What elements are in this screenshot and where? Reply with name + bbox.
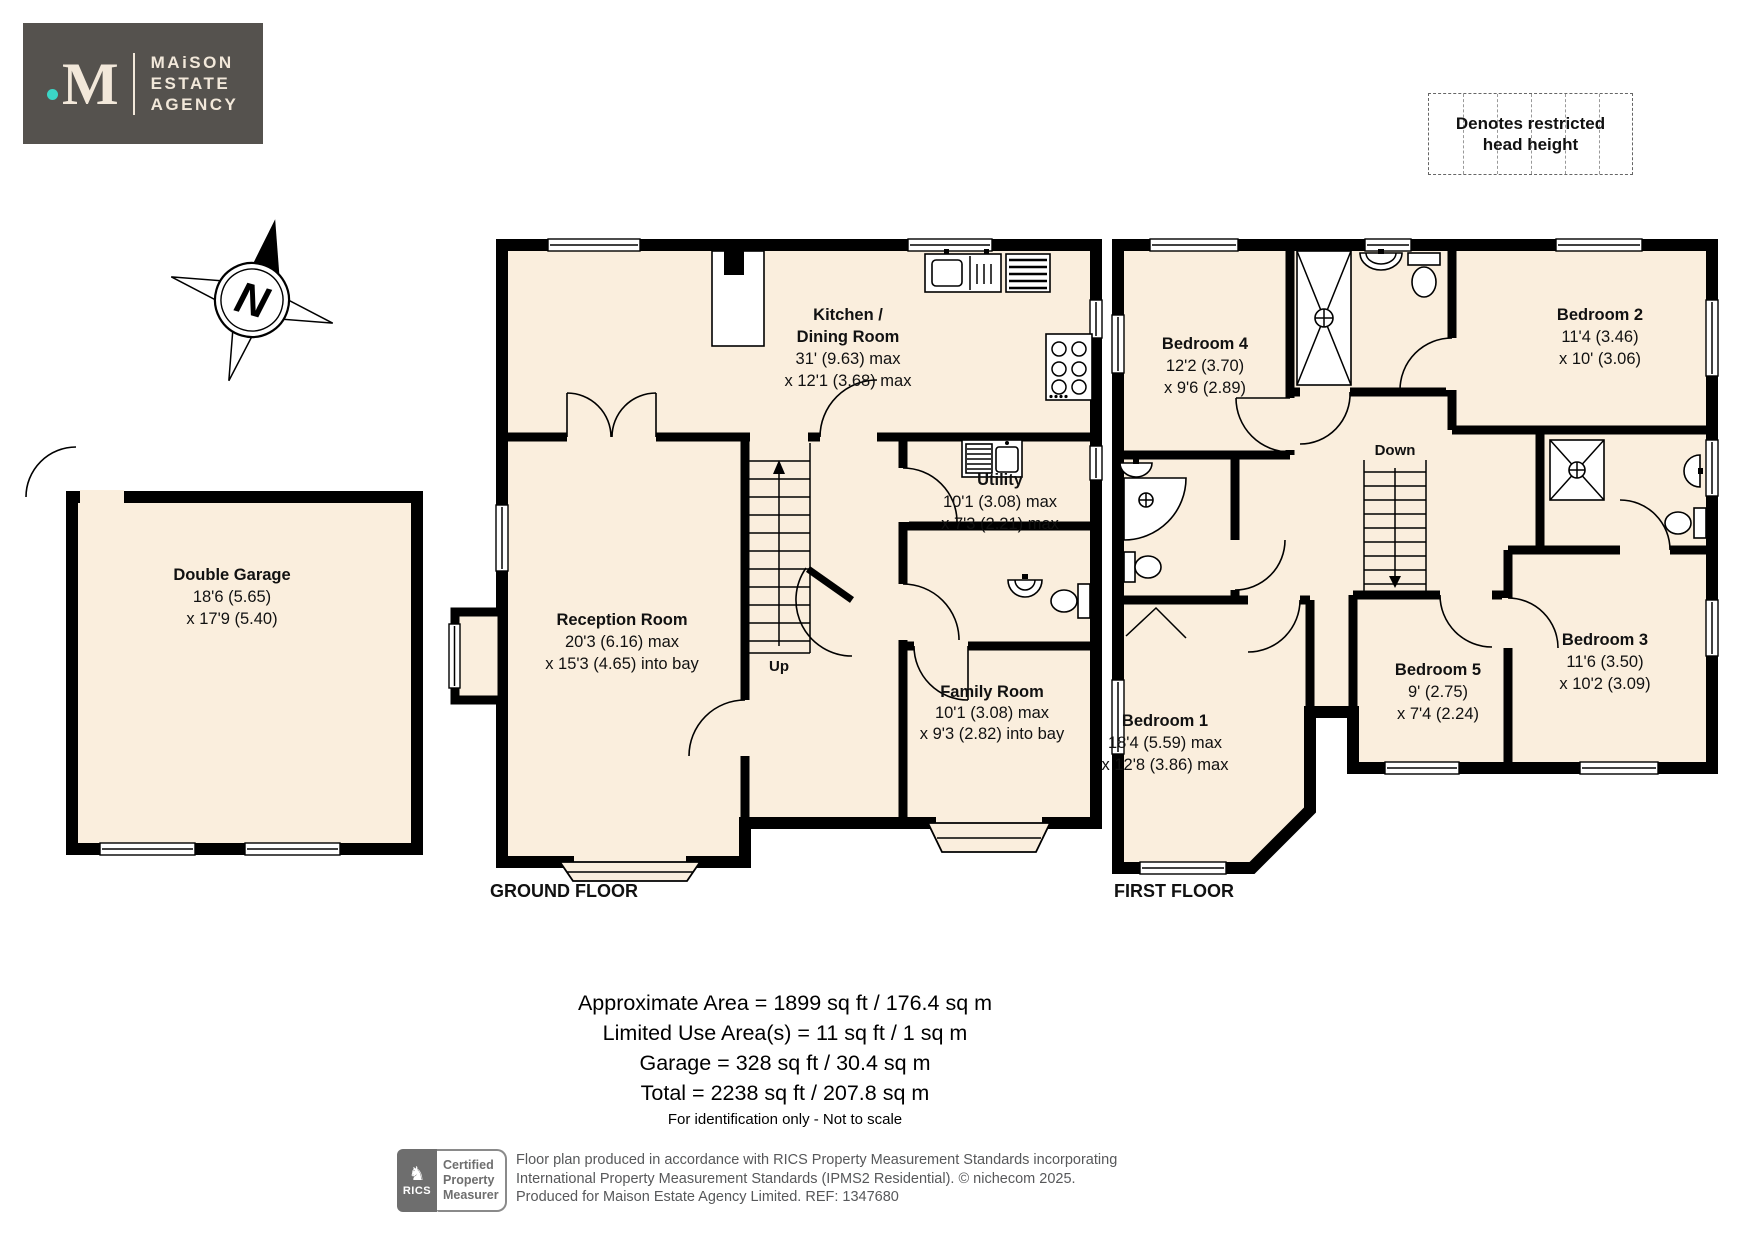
- bedroom3-label: Bedroom 3 11'6 (3.50) x 10'2 (3.09): [1559, 631, 1650, 693]
- room-label: Dining Room: [797, 328, 900, 346]
- compass-rose: N: [148, 196, 356, 404]
- summary-line: Garage = 328 sq ft / 30.4 sq m: [420, 1048, 1150, 1078]
- bathroom-shower-icon: [1297, 251, 1351, 385]
- room-dimension: 10'1 (3.08) max: [943, 493, 1058, 511]
- room-label: Bedroom 4: [1162, 335, 1249, 353]
- hob-icon: [1046, 334, 1092, 400]
- family-room-label: Family Room 10'1 (3.08) max x 9'3 (2.82)…: [920, 683, 1065, 743]
- garage-plan: Double Garage 18'6 (5.65) x 17'9 (5.40): [26, 447, 417, 855]
- kitchen-sink-icon: [925, 249, 1001, 292]
- room-dimension: x 7'4 (2.24): [1397, 705, 1479, 723]
- fine-print-line: International Property Measurement Stand…: [516, 1170, 1176, 1189]
- window: [1580, 762, 1658, 774]
- bedroom4-label: Bedroom 4 12'2 (3.70) x 9'6 (2.89): [1162, 335, 1249, 397]
- room-dimension: 9' (2.75): [1408, 683, 1468, 701]
- summary-line: Limited Use Area(s) = 11 sq ft / 1 sq m: [420, 1018, 1150, 1048]
- room-label: Family Room: [940, 683, 1044, 701]
- reception-label: Reception Room 20'3 (6.16) max x 15'3 (4…: [545, 611, 699, 673]
- window: [1706, 300, 1718, 376]
- window: [1150, 239, 1238, 251]
- bedroom2-label: Bedroom 2 11'4 (3.46) x 10' (3.06): [1557, 306, 1643, 368]
- summary-line: Approximate Area = 1899 sq ft / 176.4 sq…: [420, 988, 1150, 1018]
- room-dimension: 18'4 (5.59) max: [1108, 734, 1223, 752]
- first-floor-plan: Down: [1102, 239, 1718, 901]
- room-dimension: x 10' (3.06): [1559, 350, 1641, 368]
- stairs-down-label: Down: [1375, 442, 1416, 459]
- certified-line: Property: [443, 1173, 505, 1188]
- room-label: Bedroom 2: [1557, 306, 1643, 324]
- room-dimension: 10'1 (3.08) max: [935, 704, 1050, 722]
- room-dimension: x 12'1 (3.68) max: [785, 372, 913, 390]
- window: [1090, 300, 1102, 338]
- room-label: Reception Room: [556, 611, 687, 629]
- garage-door: [100, 843, 195, 855]
- room-dimension: 20'3 (6.16) max: [565, 633, 680, 651]
- room-dimension: 11'6 (3.50): [1566, 653, 1643, 671]
- stair-head-opening: [750, 431, 808, 443]
- summary-line: Total = 2238 sq ft / 207.8 sq m: [420, 1078, 1150, 1108]
- room-dimension: x 10'2 (3.09): [1559, 675, 1650, 693]
- reception-bay-window: [560, 854, 700, 881]
- ground-floor-plan: Up: [449, 239, 1102, 901]
- room-dimension: x 7'3 (2.21) max: [941, 515, 1060, 533]
- rics-logo: ♞ RICS: [397, 1149, 437, 1212]
- reception-side-bay: [449, 612, 502, 700]
- area-summary: Approximate Area = 1899 sq ft / 176.4 sq…: [420, 988, 1150, 1128]
- fine-print-line: Floor plan produced in accordance with R…: [516, 1151, 1176, 1170]
- window: [1706, 440, 1718, 496]
- garage-outline: [72, 497, 417, 849]
- room-label: Kitchen /: [813, 306, 883, 324]
- shower-room-shower-icon: [1550, 440, 1604, 500]
- stairs-up-label: Up: [769, 658, 789, 675]
- ground-floor-title: GROUND FLOOR: [490, 881, 638, 901]
- room-label: Bedroom 1: [1122, 712, 1208, 730]
- room-dimension: x 9'6 (2.89): [1164, 379, 1246, 397]
- family-bay-window: [928, 816, 1050, 852]
- rics-badge: ♞ RICS Certified Property Measurer: [397, 1149, 507, 1212]
- window: [1140, 862, 1226, 874]
- window: [908, 239, 992, 251]
- room-label: Double Garage: [173, 566, 290, 584]
- room-label: Utility: [977, 471, 1024, 489]
- certified-measurer-box: Certified Property Measurer: [437, 1149, 507, 1212]
- fine-print: Floor plan produced in accordance with R…: [516, 1151, 1176, 1207]
- rics-lion-icon: ♞: [408, 1165, 425, 1185]
- room-dimension: x 17'9 (5.40): [186, 610, 277, 628]
- room-dimension: 12'2 (3.70): [1166, 357, 1244, 375]
- window: [1090, 446, 1102, 480]
- window: [496, 505, 508, 571]
- room-dimension: 31' (9.63) max: [796, 350, 902, 368]
- scale-disclaimer: For identification only - Not to scale: [420, 1111, 1150, 1128]
- window: [1365, 239, 1411, 251]
- certified-line: Certified: [443, 1158, 505, 1173]
- fine-print-line: Produced for Maison Estate Agency Limite…: [516, 1188, 1176, 1207]
- window: [548, 239, 640, 251]
- room-dimension: x 9'3 (2.82) into bay: [920, 725, 1065, 743]
- first-floor-title: FIRST FLOOR: [1114, 881, 1234, 901]
- certified-line: Measurer: [443, 1188, 505, 1203]
- window: [1556, 239, 1642, 251]
- window: [1706, 600, 1718, 656]
- chimney-breast: [712, 251, 764, 346]
- window: [1112, 315, 1124, 373]
- window: [1385, 762, 1459, 774]
- room-label: Bedroom 3: [1562, 631, 1648, 649]
- garage-door: [245, 843, 340, 855]
- room-dimension: 18'6 (5.65): [193, 588, 271, 606]
- room-dimension: x 12'8 (3.86) max: [1102, 756, 1230, 774]
- appliance-icon: [1006, 254, 1050, 292]
- room-dimension: x 15'3 (4.65) into bay: [545, 655, 699, 673]
- floorplan-page: M MAiSON ESTATE AGENCY Denotes restricte…: [0, 0, 1755, 1241]
- room-label: Bedroom 5: [1395, 661, 1481, 679]
- rics-brand: RICS: [403, 1185, 431, 1197]
- room-dimension: 11'4 (3.46): [1561, 328, 1638, 346]
